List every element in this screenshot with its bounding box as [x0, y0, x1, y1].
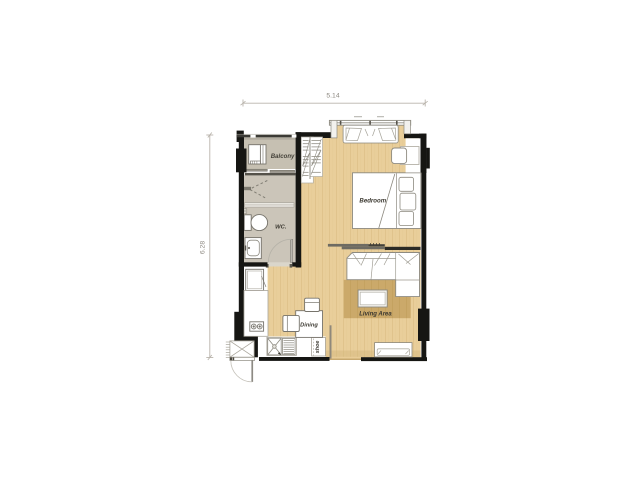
- svg-text:6.28: 6.28: [199, 241, 206, 254]
- svg-text:Living Area: Living Area: [359, 311, 392, 317]
- svg-text:shoe: shoe: [315, 341, 321, 354]
- svg-text:Bedroom: Bedroom: [359, 197, 386, 204]
- svg-text:Balcony: Balcony: [271, 153, 295, 160]
- svg-text:WC.: WC.: [275, 224, 287, 230]
- svg-text:5.14: 5.14: [326, 92, 339, 99]
- svg-text:Dining: Dining: [300, 322, 318, 328]
